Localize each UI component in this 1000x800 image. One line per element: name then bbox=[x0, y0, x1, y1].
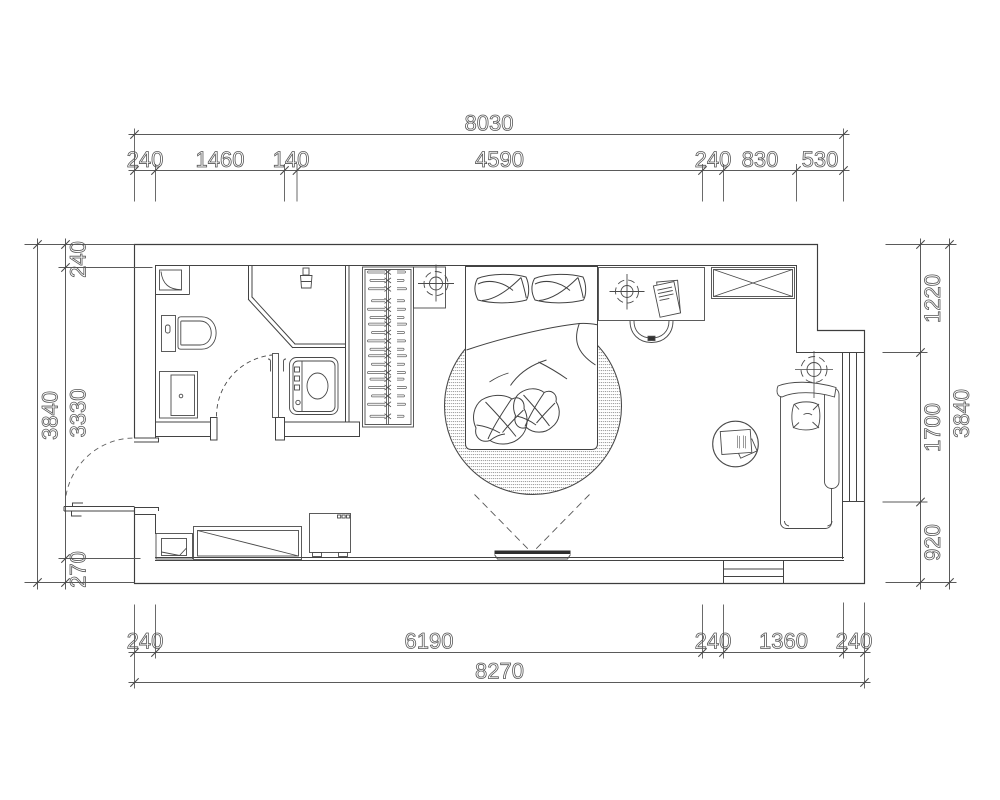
svg-text:240: 240 bbox=[127, 629, 164, 654]
svg-text:1360: 1360 bbox=[759, 629, 808, 654]
svg-text:8030: 8030 bbox=[465, 111, 514, 136]
svg-text:920: 920 bbox=[920, 524, 945, 561]
svg-text:830: 830 bbox=[742, 147, 779, 172]
svg-text:3330: 3330 bbox=[66, 389, 91, 438]
svg-text:3840: 3840 bbox=[949, 389, 974, 438]
svg-text:530: 530 bbox=[802, 147, 839, 172]
svg-text:140: 140 bbox=[273, 147, 310, 172]
svg-text:4590: 4590 bbox=[475, 147, 524, 172]
svg-text:1700: 1700 bbox=[920, 403, 945, 452]
svg-text:240: 240 bbox=[695, 629, 732, 654]
svg-text:3840: 3840 bbox=[38, 391, 63, 440]
svg-text:1220: 1220 bbox=[920, 274, 945, 323]
svg-text:6190: 6190 bbox=[405, 629, 454, 654]
svg-text:240: 240 bbox=[127, 147, 164, 172]
svg-text:240: 240 bbox=[836, 629, 873, 654]
svg-text:8270: 8270 bbox=[475, 659, 524, 684]
svg-text:240: 240 bbox=[66, 241, 91, 278]
svg-text:270: 270 bbox=[66, 551, 91, 588]
svg-text:240: 240 bbox=[695, 147, 732, 172]
svg-text:1460: 1460 bbox=[196, 147, 245, 172]
